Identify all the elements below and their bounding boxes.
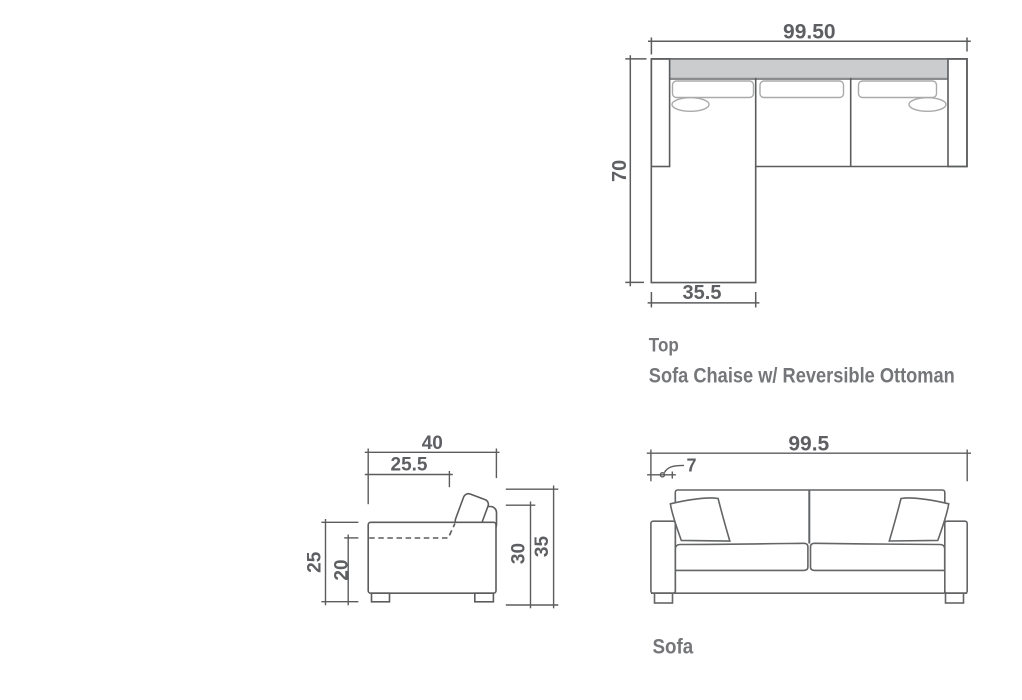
- svg-text:40: 40: [422, 433, 443, 454]
- svg-text:99.50: 99.50: [783, 21, 836, 44]
- svg-text:Top: Top: [649, 336, 679, 357]
- svg-text:25: 25: [305, 551, 326, 573]
- svg-text:99.5: 99.5: [788, 432, 829, 455]
- svg-text:Sofa: Sofa: [653, 636, 694, 659]
- svg-text:35: 35: [532, 536, 553, 558]
- svg-text:20: 20: [332, 559, 353, 580]
- svg-text:Sofa Chaise w/ Reversible Otto: Sofa Chaise w/ Reversible Ottoman: [649, 364, 955, 387]
- svg-text:35.5: 35.5: [683, 282, 722, 304]
- svg-text:30: 30: [509, 543, 530, 564]
- svg-text:25.5: 25.5: [391, 454, 428, 475]
- svg-text:70: 70: [609, 160, 631, 182]
- svg-text:7: 7: [687, 456, 697, 476]
